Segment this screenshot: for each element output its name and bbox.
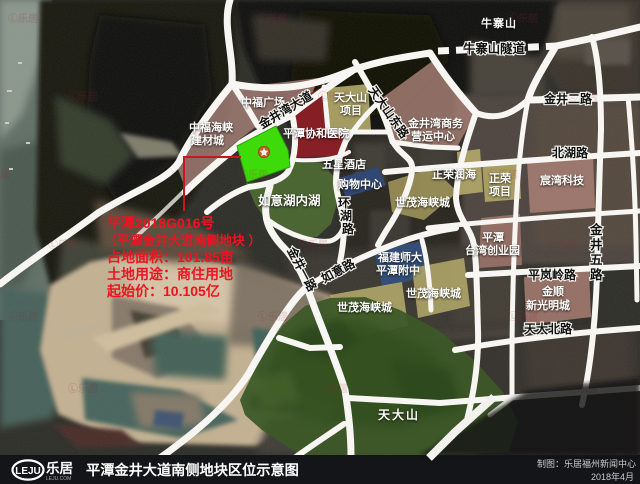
svg-text:占地面积：101.85亩: 占地面积：101.85亩 [107,249,234,265]
svg-text:平潭2018G016号: 平潭2018G016号 [107,215,214,231]
svg-text:宸湾科技: 宸湾科技 [540,173,585,187]
svg-text:牛寨山隧道: 牛寨山隧道 [463,41,526,56]
svg-text:台湾创业园: 台湾创业园 [465,243,520,257]
svg-text:Ⓛ乐居: Ⓛ乐居 [238,168,268,181]
svg-text:2018年4月: 2018年4月 [591,471,634,482]
svg-text:起始价：10.105亿: 起始价：10.105亿 [106,283,220,299]
svg-text:湖: 湖 [340,208,352,223]
svg-text:项目: 项目 [340,104,362,117]
svg-text:Ⓛ乐居: Ⓛ乐居 [258,310,288,323]
svg-text:居: 居 [0,169,10,181]
svg-text:正荣: 正荣 [489,171,512,185]
svg-text:环: 环 [338,196,350,210]
svg-text:购物中心: 购物中心 [338,177,382,191]
svg-text:Ⓛ乐居: Ⓛ乐居 [548,238,578,251]
svg-text:五星酒店: 五星酒店 [322,157,366,171]
svg-text:平潭协和医院: 平潭协和医院 [283,126,349,140]
svg-text:营运中心: 营运中心 [411,129,455,143]
svg-text:Ⓛ乐居: Ⓛ乐居 [318,382,348,395]
svg-text:金井二路: 金井二路 [543,91,593,106]
svg-text:世茂海峡城: 世茂海峡城 [406,286,461,300]
svg-text:土地用途：商住用地: 土地用途：商住用地 [107,266,233,282]
svg-text:平潭: 平潭 [482,230,504,244]
svg-text:建材城: 建材城 [191,133,224,147]
svg-text:天大山: 天大山 [378,407,420,422]
svg-text:路: 路 [590,267,603,282]
svg-text:井: 井 [590,237,603,252]
svg-text:Ⓛ乐居: Ⓛ乐居 [68,382,98,395]
svg-text:Ⓛ乐居: Ⓛ乐居 [258,12,288,25]
svg-text:乐居: 乐居 [46,460,73,476]
svg-text:世茂海峡城: 世茂海峡城 [395,195,450,209]
svg-text:金: 金 [589,222,603,237]
svg-text:平岚岭路: 平岚岭路 [528,267,577,282]
svg-text:Ⓛ乐居: Ⓛ乐居 [68,90,98,103]
svg-text:制图：乐居福州新闻中心: 制图：乐居福州新闻中心 [537,458,636,469]
svg-text:正荣润海: 正荣润海 [432,167,476,181]
svg-text:Ⓛ乐居: Ⓛ乐居 [298,238,328,251]
svg-text:Ⓛ乐居: Ⓛ乐居 [8,12,38,25]
svg-text:Ⓛ乐居: Ⓛ乐居 [48,238,78,251]
svg-text:LEJU.COM: LEJU.COM [46,476,71,482]
svg-text:福建师大: 福建师大 [377,250,422,264]
svg-text:五: 五 [590,253,603,267]
svg-text:金顺: 金顺 [541,284,564,298]
svg-text:牛寨山: 牛寨山 [481,16,517,30]
svg-text:天大北路: 天大北路 [524,321,573,336]
svg-text:Ⓛ乐居: Ⓛ乐居 [8,310,38,323]
svg-text:北湖路: 北湖路 [552,145,589,160]
svg-text:（平潭金井大道南侧地块 ）: （平潭金井大道南侧地块 ） [104,233,261,248]
svg-text:平潭金井大道南侧地块区位示意图: 平潭金井大道南侧地块区位示意图 [86,462,299,479]
svg-text:新光明城: 新光明城 [526,298,570,312]
svg-text:世茂海峡城: 世茂海峡城 [337,300,392,314]
svg-text:LEJU: LEJU [15,466,41,477]
svg-text:项目: 项目 [489,185,511,198]
svg-text:平潭附中: 平潭附中 [376,263,420,277]
svg-text:天大山: 天大山 [334,90,367,104]
svg-text:如意湖内湖: 如意湖内湖 [258,193,321,208]
svg-text:中福海峡: 中福海峡 [189,120,234,134]
svg-text:金井湾商务: 金井湾商务 [407,116,464,130]
svg-text:路: 路 [342,221,355,236]
